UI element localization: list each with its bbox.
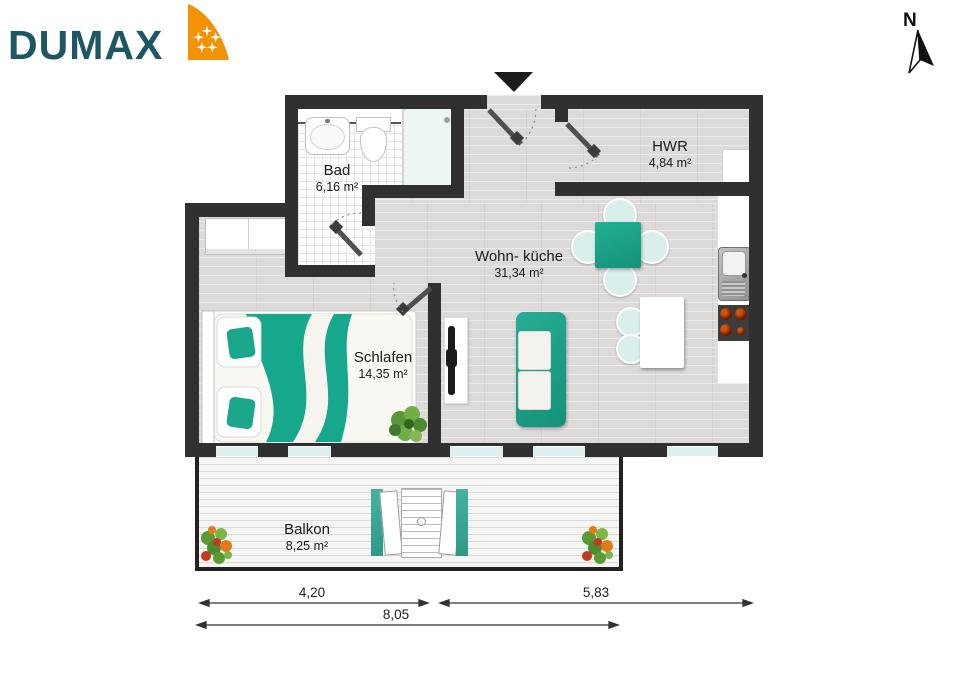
dimension-balcony-width: 4,20 xyxy=(299,585,325,600)
window xyxy=(450,446,503,457)
wall-hwr-bottom xyxy=(555,182,763,196)
tv-stand xyxy=(446,349,457,367)
wall-left xyxy=(185,203,199,457)
tv-sideboard xyxy=(444,317,468,404)
balcony-rail-bottom xyxy=(195,567,623,571)
threshold-knob xyxy=(417,517,426,526)
window xyxy=(288,446,331,457)
burner xyxy=(737,327,745,335)
wall-bedroom-top xyxy=(185,203,298,217)
dining-table xyxy=(595,222,641,268)
wall-bath-left xyxy=(285,95,298,277)
hwr-appliance xyxy=(722,149,752,184)
sink-drainer xyxy=(722,281,745,296)
room-label-bad: Bad 6,16 m² xyxy=(316,162,358,195)
balcony-rail-right xyxy=(619,457,623,571)
room-label-schlafen: Schlafen 14,35 m² xyxy=(354,349,412,382)
wall-shower-bottom xyxy=(362,185,464,198)
sofa xyxy=(516,312,566,427)
window xyxy=(216,446,258,457)
north-arrow-icon xyxy=(0,0,960,100)
room-label-hwr: HWR 4,84 m² xyxy=(649,138,691,171)
balcony-door-panel xyxy=(456,489,468,556)
sink-basin xyxy=(722,251,746,276)
wardrobe-base xyxy=(206,249,291,254)
burner xyxy=(720,324,732,336)
burner xyxy=(720,308,732,320)
window xyxy=(533,446,585,457)
sofa-cushion xyxy=(518,371,551,410)
sink-basin xyxy=(310,124,345,150)
wall-corridor-left xyxy=(451,95,464,190)
cooktop xyxy=(718,305,749,341)
floor-plan-canvas: DUMAX N xyxy=(0,0,960,679)
burner xyxy=(735,308,747,320)
room-label-wohnkueche: Wohn- küche 31,34 m² xyxy=(475,248,563,281)
room-label-balkon: Balkon 8,25 m² xyxy=(284,521,330,554)
kitchen-island xyxy=(640,297,684,368)
dimension-total-width: 8,05 xyxy=(383,607,409,622)
balcony-door-threshold xyxy=(401,488,442,558)
wall-bath-bottom xyxy=(293,265,375,277)
dimension-right-width: 5,83 xyxy=(583,585,609,600)
wall-bedroom-right xyxy=(428,283,441,457)
wardrobe xyxy=(205,218,292,255)
kitchen-sink-unit xyxy=(718,247,751,301)
shower-drain xyxy=(444,117,450,123)
dimension-lines xyxy=(197,600,752,628)
dining-chair xyxy=(603,263,637,297)
balcony-rail-left xyxy=(195,457,199,571)
wall-right xyxy=(749,95,763,457)
bathroom-sink xyxy=(305,117,350,155)
sink-faucet xyxy=(742,273,747,278)
window xyxy=(667,446,718,457)
shower xyxy=(402,107,457,191)
sink-tap xyxy=(325,119,330,123)
sofa-cushion xyxy=(518,331,551,370)
